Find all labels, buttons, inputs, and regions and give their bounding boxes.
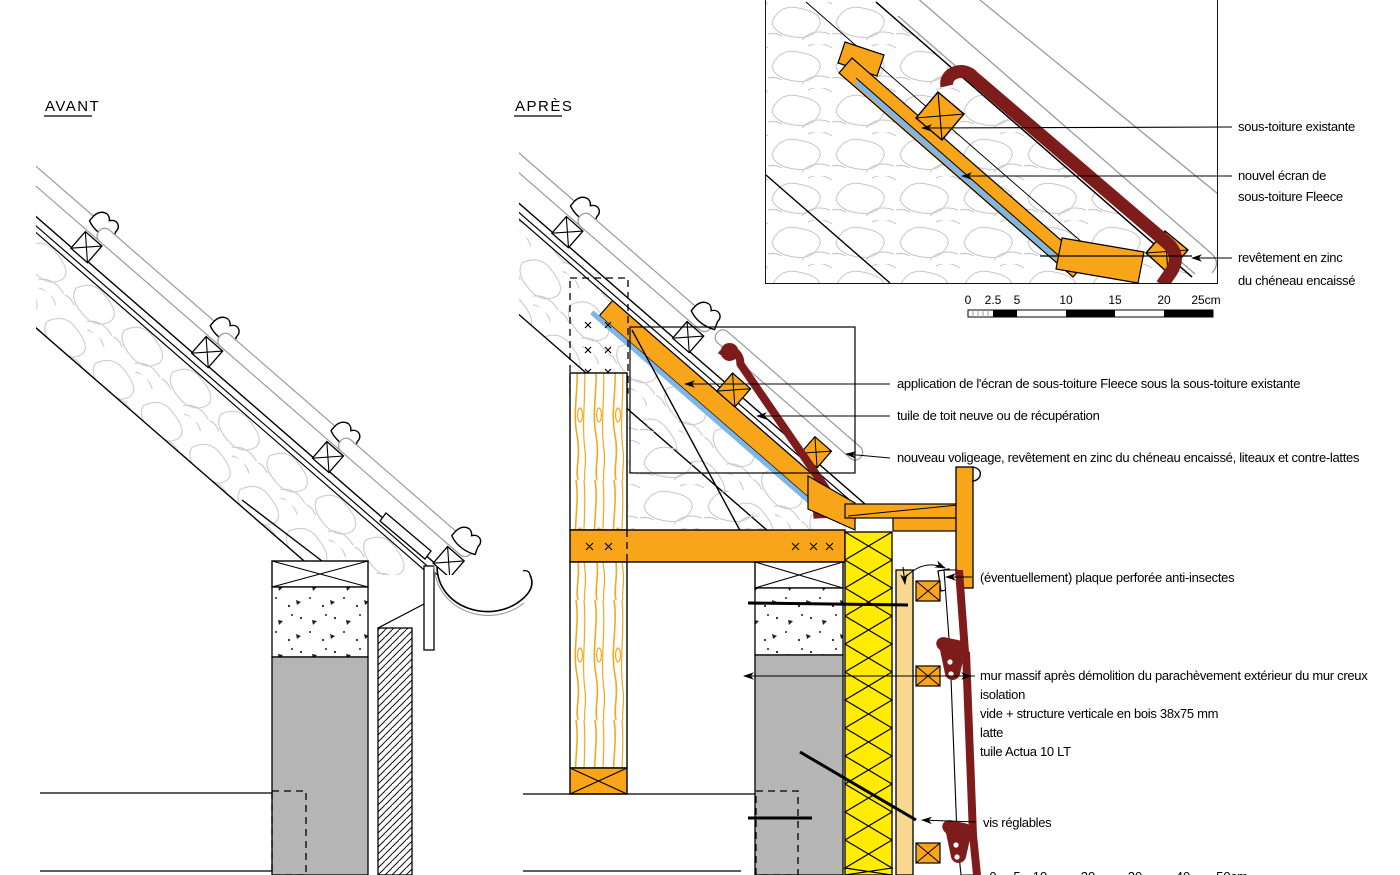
svg-text:25cm: 25cm: [1191, 293, 1220, 307]
label-plaque: (éventuellement) plaque perforée anti-in…: [980, 570, 1235, 585]
svg-text:0: 0: [965, 293, 972, 307]
apres-concrete: [755, 588, 843, 655]
detail-scalebar: 0 2.5 5 10 15 20 25cm: [965, 293, 1221, 317]
detail-inset: sous-toiture existante nouvel écran de s…: [765, 0, 1355, 317]
apres-insulation-column: [845, 532, 892, 875]
label-voligeage: nouveau voligeage, revêtement en zinc du…: [897, 450, 1360, 465]
apres-wall: [755, 562, 843, 875]
svg-text:10: 10: [1059, 293, 1073, 307]
apres-wood-post-lower: [570, 562, 627, 768]
apres-massive-wall: [755, 655, 843, 875]
apres-title: APRÈS: [515, 98, 573, 115]
label-application: application de l'écran de sous-toiture F…: [897, 376, 1300, 391]
label-latte: latte: [980, 725, 1003, 740]
svg-text:15: 15: [1108, 293, 1122, 307]
svg-text:0: 0: [989, 869, 996, 875]
avant-massive-wall: [272, 657, 368, 875]
svg-text:20: 20: [1157, 293, 1171, 307]
avant-title: AVANT: [45, 98, 100, 115]
svg-text:50cm: 50cm: [1216, 869, 1248, 875]
svg-text:20: 20: [1081, 869, 1095, 875]
svg-text:30: 30: [1128, 869, 1142, 875]
apres-beam: [570, 530, 845, 562]
avant-section: AVANT: [0, 98, 532, 875]
label-vis: vis réglables: [983, 815, 1052, 830]
avant-wall: [40, 561, 424, 875]
label-fleece-1: nouvel écran de: [1238, 168, 1326, 183]
apres-wood-post-upper: [570, 373, 627, 530]
avant-roof: [0, 106, 485, 643]
label-fleece-2: sous-toiture Fleece: [1238, 189, 1343, 204]
main-scalebar: 0 5 10 20 30 40 50cm: [989, 869, 1248, 875]
label-mur: mur massif après démolition du parachève…: [980, 668, 1368, 683]
label-existing-subroof: sous-toiture existante: [1238, 119, 1355, 134]
label-zinc-1: revêtement en zinc: [1238, 250, 1343, 265]
label-tuile: tuile de toit neuve ou de récupération: [897, 408, 1100, 423]
svg-text:40: 40: [1176, 869, 1190, 875]
avant-brick-leaf: [378, 628, 412, 875]
label-zinc-2: du chéneau encaissé: [1238, 273, 1355, 288]
avant-fascia: [424, 566, 434, 650]
svg-text:2.5: 2.5: [985, 293, 1002, 307]
apres-facade-tiles: [916, 570, 981, 875]
apres-latte: [896, 570, 913, 875]
construction-detail-drawing: AVANT: [0, 0, 1400, 875]
svg-text:10: 10: [1033, 869, 1047, 875]
label-vide: vide + structure verticale en bois 38x75…: [980, 706, 1218, 721]
label-isolation: isolation: [980, 687, 1025, 702]
svg-text:5: 5: [1014, 293, 1021, 307]
label-tuile-actua: tuile Actua 10 LT: [980, 744, 1071, 759]
avant-concrete: [272, 587, 368, 657]
apres-fascia: [956, 467, 973, 588]
avant-insulation: [0, 152, 445, 643]
svg-text:5: 5: [1013, 869, 1020, 875]
